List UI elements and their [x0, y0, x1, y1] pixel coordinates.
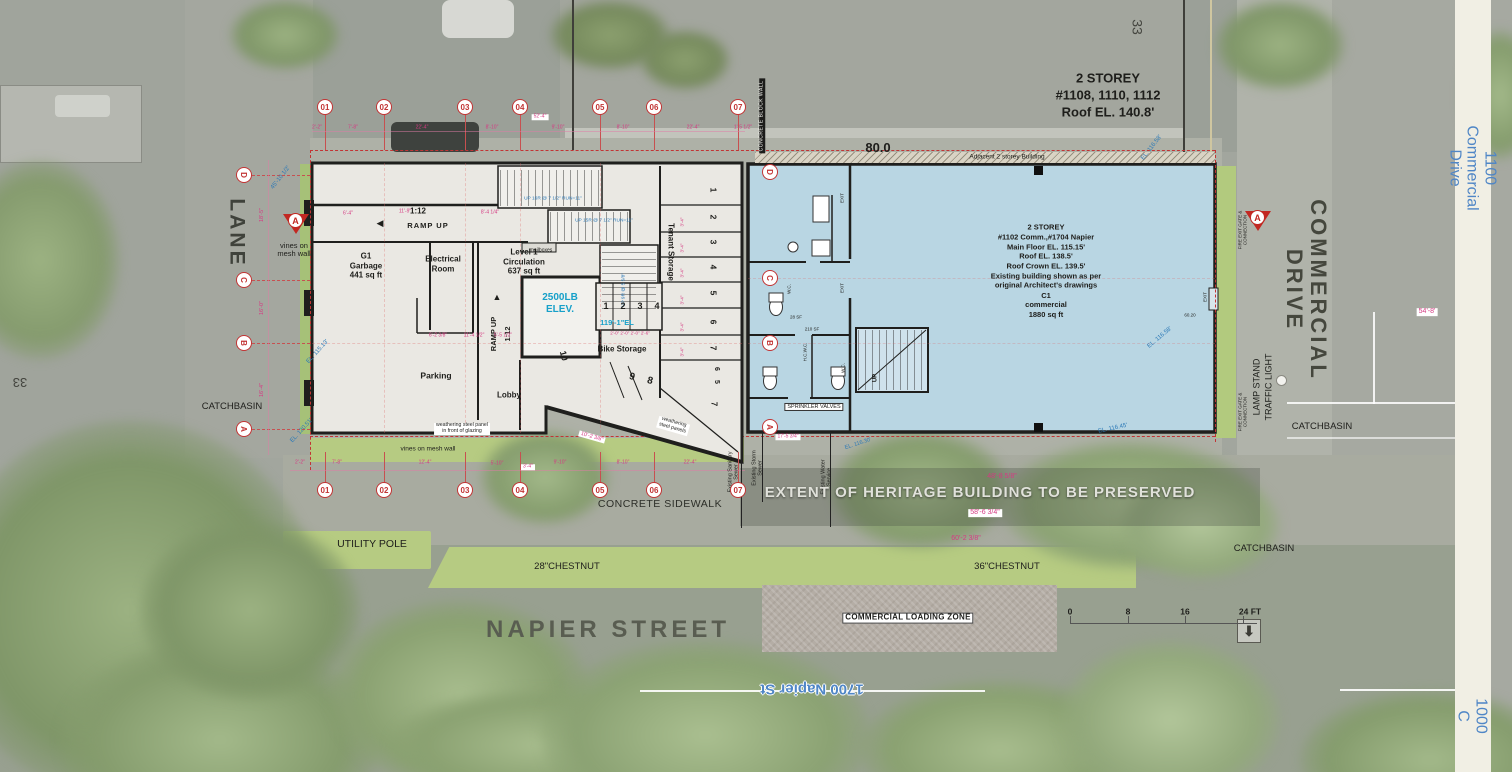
- unit-6: 6: [708, 320, 717, 325]
- section-marker-letter: A: [1250, 210, 1265, 225]
- gridline-h-c2: [748, 278, 1215, 279]
- utility-pole-label: UTILITY POLE: [337, 539, 407, 551]
- dim-b1: 2'-2": [295, 460, 305, 466]
- dim-t7: 8'-10": [617, 125, 630, 131]
- locker-1: 1: [603, 302, 608, 312]
- dim-i3: 8'-4 1/4": [481, 210, 499, 216]
- grid-bubble-s-07: 07: [730, 482, 746, 498]
- dimline-lane: [268, 160, 269, 455]
- tree-canopy: [140, 520, 360, 700]
- dim-l3: 16'-4": [259, 383, 265, 397]
- dim-s3: 3'-4": [681, 269, 686, 278]
- concrete-block-wall-tag: CONCRETE BLOCK WALL: [759, 79, 765, 154]
- grid-bubble-lane-C: C: [236, 272, 252, 288]
- grid-bubble-bldg-B: B: [762, 335, 778, 351]
- dim-i2: 11'-9": [399, 209, 411, 215]
- parking-label: Parking: [420, 371, 451, 380]
- commercial-drive-label: COMMERCIAL DRIVE: [1282, 187, 1330, 393]
- blob-white-top: [442, 0, 514, 38]
- curb-yellow-topright: [1210, 0, 1212, 152]
- section-marker-a-1: A: [1244, 209, 1272, 235]
- stair-treads-3: [602, 247, 656, 309]
- bike-storage-label: Bike Storage: [598, 346, 647, 355]
- exit-3: EXIT: [1204, 292, 1209, 302]
- dim-i5: 11'-4 1/2": [464, 333, 485, 339]
- dim-80: 80.0: [865, 141, 890, 155]
- weathering-note-1: weathering steel panel in front of glazi…: [434, 423, 490, 435]
- section-marker-a-0: A: [282, 212, 310, 238]
- dim-60-2: 60'-2 3/8": [951, 535, 981, 543]
- napier-street-label: NAPIER STREET: [486, 617, 730, 643]
- scale-tick-8: [1128, 616, 1129, 624]
- adjacent-east-wall: [1183, 0, 1185, 152]
- dim-b6: 9'-10": [554, 460, 567, 466]
- property-line-east: [1215, 150, 1216, 442]
- ramp-arrow-north-icon: ▲: [493, 293, 502, 303]
- existing-storm-sewer: Existing Storm Sewer: [752, 450, 765, 485]
- scale-8: 8: [1126, 607, 1131, 616]
- ramp-up-top: RAMP UP: [407, 222, 448, 230]
- unit-2: 2: [708, 215, 717, 220]
- existing-building-note: Existing building shown as per original …: [991, 272, 1101, 291]
- car-white: [55, 95, 110, 117]
- exit-2: EXIT: [841, 283, 846, 293]
- grid-bubble-s-01: 01: [317, 482, 333, 498]
- concrete-sidewalk-label: CONCRETE SIDEWALK: [598, 499, 722, 511]
- commercial-loading-zone-label: COMMERCIAL LOADING ZONE: [842, 613, 973, 624]
- dim-58-6: 58'-6 3/4": [968, 509, 1002, 517]
- lot-number-left: 33: [13, 375, 27, 389]
- catchbasin-commercial: CATCHBASIN: [1292, 422, 1353, 432]
- stair-note-2: UP 15R @ 7 1/2" RUN=11": [575, 218, 633, 223]
- unit-5b: 5: [712, 380, 720, 384]
- stair-up-existing: UP: [873, 374, 880, 382]
- grid-row-c: [252, 280, 310, 281]
- dim-l2: 16'-0": [259, 301, 265, 315]
- drive-laneline: [1373, 312, 1375, 404]
- dim-lk: 2'-0" 2'-0" 2'-0" 2'-6": [610, 332, 650, 337]
- dim-48-8: 48'-8 5/8": [987, 473, 1017, 481]
- address-1100-commercial: 1100 Commercial Drive: [1446, 125, 1499, 210]
- wc-3: W.C.: [842, 363, 847, 373]
- sanitary-line: [741, 430, 742, 528]
- lamp-stand-traffic-light: LAMP STAND TRAFFIC LIGHT: [1251, 354, 1274, 421]
- ramp-arrow-west-icon: ◀: [377, 219, 384, 229]
- locker-3: 3: [637, 302, 642, 312]
- sprinkler-valves-label: SPRINKLER VALVES: [784, 403, 843, 411]
- adjacent-building-info: 2 STOREY #1108, 1110, 1112 Roof EL. 140.…: [1056, 71, 1161, 122]
- grid-row-b: [252, 343, 310, 344]
- gridline-h-b: [312, 343, 742, 344]
- heritage-extent-label: EXTENT OF HERITAGE BUILDING TO BE PRESER…: [765, 485, 1196, 502]
- grid-bubble-07: 07: [730, 99, 746, 115]
- napier-1700: 1700 Napier St: [760, 680, 863, 697]
- adjacent-west-wall: [572, 0, 574, 150]
- dim-b7: 8'-10": [617, 460, 630, 466]
- address-1000: 1000 C: [1454, 696, 1489, 736]
- gridline-v2: [384, 163, 385, 433]
- dim-b8: 22'-4": [684, 460, 697, 466]
- dim-i4: 6'-2 3/8": [429, 333, 447, 339]
- adjacent-strip-note: Adjacent 2 storey Building: [969, 153, 1044, 160]
- grid-bubble-lane-B: B: [236, 335, 252, 351]
- scale-tick-24: [1243, 616, 1244, 624]
- locker-2: 2: [620, 302, 625, 312]
- vines-mesh-wall-bottom: vines on mesh wall: [401, 445, 456, 452]
- grass-strip-right: [1216, 166, 1236, 438]
- grid-bubble-bldg-C: C: [762, 270, 778, 286]
- unit-5: 5: [708, 291, 717, 296]
- grid-bubble-bldg-D: D: [762, 164, 778, 180]
- vines-mesh-wall-left: vines on mesh wall: [277, 242, 310, 259]
- drive-crossline: [1340, 689, 1455, 691]
- tree-canopy: [640, 30, 730, 90]
- grid-bubble-04: 04: [512, 99, 528, 115]
- grid-bubble-s-02: 02: [376, 482, 392, 498]
- gridline-v3: [465, 163, 466, 433]
- scale-line: [1070, 623, 1257, 624]
- grid-bubble-s-05: 05: [592, 482, 608, 498]
- stair-note-1: UP 16R @ 7 1/2" RUN=11": [524, 196, 582, 201]
- grid-bubble-01: 01: [317, 99, 333, 115]
- stair-treads-existing: [858, 330, 926, 390]
- elevator-label: 2500LB ELEV.: [542, 292, 578, 316]
- dim-b5: 3'-4": [521, 464, 535, 470]
- dim-s1: 3'-4": [681, 218, 686, 227]
- grid-bubble-lane-D: D: [236, 167, 252, 183]
- dim-l1: 18'-5": [259, 208, 265, 222]
- grid-bubble-06: 06: [646, 99, 662, 115]
- wc-2: H.C.W.C.: [804, 343, 809, 362]
- grid-bubble-05: 05: [592, 99, 608, 115]
- grid-bubble-s-03: 03: [457, 482, 473, 498]
- section-marker-letter: A: [288, 213, 303, 228]
- lobby-label: Lobby: [497, 392, 521, 401]
- mailboxes-label: mailboxes: [530, 248, 553, 254]
- grid-bubble-03: 03: [457, 99, 473, 115]
- dim-t2: 7'-8": [348, 125, 358, 131]
- room-electrical: Electrical Room: [425, 254, 461, 273]
- dim-t6: 9'-10": [552, 125, 565, 131]
- unit-7: 7: [708, 346, 717, 351]
- room-c1: C1 commercial 1880 sq ft: [1025, 291, 1067, 319]
- dim-t4: 8'-10": [486, 125, 499, 131]
- catchbasin-napier: CATCHBASIN: [1234, 544, 1295, 554]
- dim-s4: 3'-4": [681, 296, 686, 305]
- exit-1: EXIT: [841, 193, 846, 203]
- scale-24ft: 24 FT: [1239, 607, 1261, 616]
- dim-1755: 17'-5 3/4": [775, 434, 800, 440]
- dimline-bottom: [290, 470, 745, 471]
- dim-b3: 12'-4": [419, 460, 432, 466]
- dim-b2: 7'-8": [332, 460, 342, 466]
- dim-b4: 5'-10": [491, 461, 504, 467]
- unit-3: 3: [708, 240, 717, 245]
- tree-canopy: [1215, 0, 1345, 90]
- grid-bubble-s-04: 04: [512, 482, 528, 498]
- unit-4: 4: [708, 265, 717, 270]
- tree-canopy: [230, 0, 340, 70]
- dim-t5: 52'-4": [532, 114, 549, 120]
- wc-1: W.C.: [788, 284, 793, 294]
- dim-i6: 5'-5 1/2": [494, 333, 512, 339]
- lot-number-top: 33: [1129, 19, 1144, 35]
- existing-building-info: 2 STOREY #1102 Comm.,#1704 Napier Main F…: [998, 223, 1094, 272]
- dim-6020: 60.20: [1184, 314, 1195, 319]
- dim-t8: 22'-4": [687, 125, 700, 131]
- scale-0: 0: [1068, 607, 1073, 616]
- dim-t1: 2'-2": [312, 125, 322, 131]
- unit-1: 1: [708, 188, 717, 193]
- ramp-grade-top: 1:12: [410, 208, 426, 217]
- site-interior: [310, 138, 1222, 460]
- grid-bubble-02: 02: [376, 99, 392, 115]
- unit-6b: 6: [712, 367, 720, 371]
- dim-54-8: 54'-8': [1417, 308, 1438, 316]
- dim-i1: 6'-4": [343, 211, 353, 217]
- dim-t9: 1'-5 1/2": [734, 125, 752, 131]
- tree-canopy: [480, 430, 610, 525]
- dim-s6: 3'-4": [681, 348, 686, 357]
- site-plan-canvas: ⬇ 2 STOREY #1108, 1110, 1112 Roof EL. 14…: [0, 0, 1512, 772]
- dim-s5: 3'-4": [681, 323, 686, 332]
- sf-28: 28 SF: [790, 316, 802, 321]
- chestnut-28: 28"CHESTNUT: [534, 562, 600, 572]
- locker-4: 4: [654, 302, 659, 312]
- el-119: 119'-1"EL: [600, 319, 634, 327]
- unit-7b: 7: [709, 402, 718, 406]
- scale-tick-0: [1070, 616, 1071, 624]
- grid-bubble-s-06: 06: [646, 482, 662, 498]
- stair-treads-2: [550, 212, 628, 241]
- sf-210: 210 SF: [805, 328, 820, 333]
- gridline-h-b2: [748, 343, 1215, 344]
- tenant-storage-label: Tenant Storage: [666, 223, 675, 281]
- lane-label: LANE: [225, 198, 248, 267]
- dimline-top: [312, 131, 745, 132]
- room-g1-garbage: G1 Garbage 441 sq ft: [350, 252, 382, 281]
- grid-bubble-bldg-A: A: [762, 419, 778, 435]
- catchbasin-lane: CATCHBASIN: [202, 402, 263, 412]
- gridline-v5: [600, 163, 601, 433]
- grid-bubble-lane-A: A: [236, 421, 252, 437]
- chestnut-36: 36"CHESTNUT: [974, 562, 1040, 572]
- fire-exit-gate-2: FIRE EXIT GATE & CONNECTION: [1238, 393, 1249, 432]
- scale-16: 16: [1180, 607, 1189, 616]
- address-strip-right: [1455, 0, 1491, 772]
- dim-s2: 3'-4": [681, 244, 686, 253]
- drive-stopline-2: [1287, 437, 1459, 439]
- dim-t3: 22'-4": [416, 125, 429, 131]
- scale-tick-16: [1185, 616, 1186, 624]
